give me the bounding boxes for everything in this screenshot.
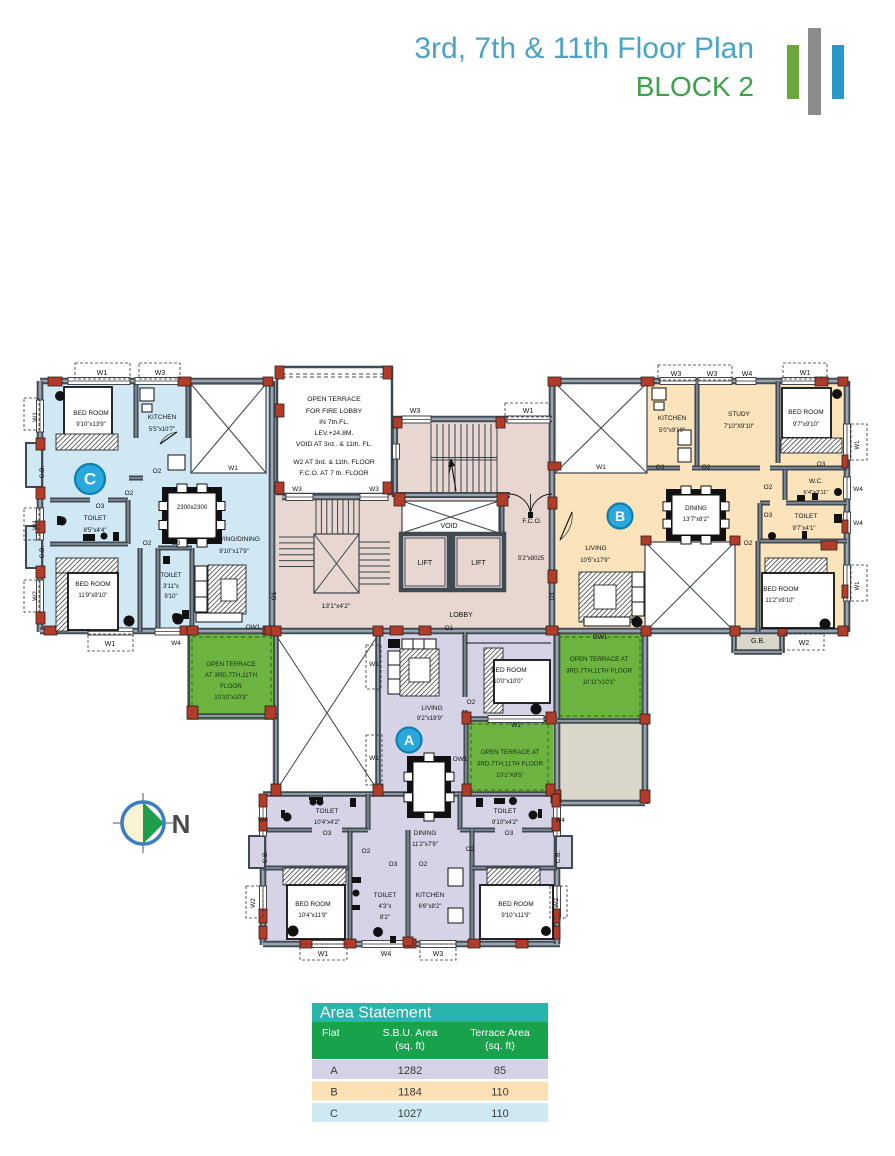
svg-text:5'5"x10'7": 5'5"x10'7": [149, 427, 175, 433]
svg-text:11'2"x7'9": 11'2"x7'9": [412, 842, 438, 848]
svg-text:W4: W4: [381, 951, 392, 958]
svg-text:W1: W1: [369, 661, 379, 668]
svg-text:W1: W1: [228, 465, 238, 472]
svg-text:W1: W1: [105, 641, 116, 648]
svg-text:11'2"x9'10": 11'2"x9'10": [765, 598, 794, 604]
svg-text:IN 7th.FL.: IN 7th.FL.: [319, 419, 349, 426]
svg-text:O2: O2: [467, 699, 476, 706]
svg-text:O2: O2: [362, 848, 371, 855]
svg-text:W1: W1: [369, 755, 379, 762]
svg-text:9'10": 9'10": [164, 594, 177, 600]
svg-text:LOBBY: LOBBY: [449, 612, 473, 619]
svg-text:O1: O1: [445, 625, 454, 632]
svg-text:10'4"x4'2": 10'4"x4'2": [314, 820, 340, 826]
svg-text:A: A: [404, 732, 414, 748]
svg-text:W3: W3: [671, 371, 682, 378]
svg-text:6'4"x3'11": 6'4"x3'11": [804, 490, 829, 496]
svg-text:9'10"x13'9": 9'10"x13'9": [76, 422, 106, 428]
svg-text:O2: O2: [125, 490, 134, 497]
svg-text:O3: O3: [96, 503, 105, 510]
svg-text:W1: W1: [97, 370, 108, 377]
svg-text:O2: O2: [764, 484, 773, 491]
svg-text:W3: W3: [369, 486, 379, 493]
svg-text:BED ROOM: BED ROOM: [491, 667, 526, 674]
svg-text:OPEN TERRACE AT: OPEN TERRACE AT: [570, 656, 629, 663]
svg-text:LIVING/DINING: LIVING/DINING: [214, 536, 260, 543]
svg-text:10'5"x17'9": 10'5"x17'9": [580, 558, 610, 564]
svg-text:5'2"x8025: 5'2"x8025: [518, 556, 545, 562]
svg-text:10'0"x10'0": 10'0"x10'0": [493, 679, 523, 685]
svg-text:W1: W1: [596, 464, 606, 471]
svg-text:C.B.: C.B.: [39, 465, 46, 478]
svg-text:3RD,7TH,11TH FLOOR: 3RD,7TH,11TH FLOOR: [566, 668, 633, 675]
svg-text:W1: W1: [855, 581, 861, 591]
svg-text:4'3"x: 4'3"x: [379, 904, 392, 910]
svg-text:FLOOR: FLOOR: [220, 683, 242, 690]
svg-text:W.C.: W.C.: [809, 478, 823, 485]
svg-text:BED ROOM: BED ROOM: [763, 586, 798, 593]
svg-text:O3: O3: [817, 461, 826, 468]
svg-text:10'10"x10'3": 10'10"x10'3": [214, 694, 247, 701]
svg-text:85: 85: [494, 1065, 506, 1077]
svg-text:W3: W3: [707, 371, 718, 378]
svg-text:1184: 1184: [398, 1087, 422, 1099]
svg-text:O2: O2: [702, 464, 711, 471]
svg-text:W1: W1: [318, 951, 329, 958]
svg-text:N: N: [172, 809, 191, 839]
svg-text:BED ROOM: BED ROOM: [498, 901, 533, 908]
svg-text:9'7"x4'1": 9'7"x4'1": [793, 526, 816, 532]
svg-text:O3: O3: [764, 512, 773, 519]
svg-text:O2: O2: [153, 468, 162, 475]
svg-text:BED ROOM: BED ROOM: [75, 581, 110, 588]
svg-text:(sq. ft): (sq. ft): [485, 1040, 515, 1052]
svg-text:W1: W1: [855, 440, 861, 450]
svg-text:TOILET: TOILET: [316, 808, 339, 815]
svg-text:TOILET: TOILET: [84, 515, 107, 522]
svg-text:BED ROOM: BED ROOM: [788, 409, 823, 416]
svg-text:O3: O3: [172, 540, 181, 547]
svg-text:OW1: OW1: [246, 624, 261, 631]
svg-text:OPEN TERRACE: OPEN TERRACE: [307, 396, 361, 403]
svg-text:VOID AT 3rd.. & 11th. FL.: VOID AT 3rd.. & 11th. FL.: [296, 441, 372, 448]
svg-text:W4: W4: [32, 520, 39, 530]
svg-text:W4: W4: [742, 371, 753, 378]
svg-text:TOILET: TOILET: [161, 573, 182, 579]
svg-text:AT 3RD,7TH,11TH: AT 3RD,7TH,11TH: [205, 672, 258, 679]
svg-text:6'6"x8'2": 6'6"x8'2": [419, 904, 442, 910]
svg-text:10'11"x10'1": 10'11"x10'1": [583, 679, 616, 686]
svg-text:B: B: [615, 508, 625, 524]
svg-text:O3: O3: [656, 464, 665, 471]
svg-text:W2: W2: [799, 640, 810, 647]
svg-text:Flat: Flat: [322, 1027, 340, 1039]
svg-text:O2: O2: [419, 861, 428, 868]
svg-text:13'1"x4'2": 13'1"x4'2": [322, 603, 351, 610]
svg-text:BED ROOM: BED ROOM: [295, 901, 330, 908]
svg-text:KITCHEN: KITCHEN: [658, 415, 687, 422]
svg-text:C: C: [84, 470, 96, 489]
svg-text:OPEN TERRACE: OPEN TERRACE: [206, 661, 256, 668]
svg-text:LIVING: LIVING: [585, 545, 606, 552]
svg-text:F.C.O. AT 7 th. FLOOR: F.C.O. AT 7 th. FLOOR: [299, 470, 368, 477]
svg-text:W2: W2: [250, 898, 257, 908]
svg-text:LIFT: LIFT: [471, 560, 486, 567]
svg-text:O1: O1: [549, 591, 556, 600]
svg-text:O2: O2: [143, 540, 152, 547]
svg-text:11'9"x9'10": 11'9"x9'10": [78, 593, 107, 599]
svg-text:9'10"x11'9": 9'10"x11'9": [501, 913, 530, 919]
svg-text:W2: W2: [32, 591, 39, 601]
svg-text:C.B.: C.B.: [39, 545, 46, 558]
svg-text:FOR FIRE LOBBY: FOR FIRE LOBBY: [306, 408, 363, 415]
svg-text:3RD,7TH,11TH FLOOR: 3RD,7TH,11TH FLOOR: [477, 761, 544, 768]
svg-text:W4: W4: [171, 640, 181, 647]
svg-text:VOID: VOID: [440, 523, 457, 530]
svg-text:C.B.: C.B.: [262, 850, 269, 863]
svg-text:10'4"x11'9": 10'4"x11'9": [298, 913, 327, 919]
svg-text:W1: W1: [32, 412, 39, 422]
svg-text:5'0"x9'10": 5'0"x9'10": [659, 428, 685, 434]
svg-text:OPEN TERRACE AT: OPEN TERRACE AT: [481, 749, 540, 756]
svg-text:OW1: OW1: [453, 756, 468, 763]
svg-text:LIFT: LIFT: [418, 560, 433, 567]
svg-text:O3: O3: [323, 830, 332, 837]
svg-text:9'10"x17'9": 9'10"x17'9": [219, 549, 249, 555]
svg-text:7'10"X9'10": 7'10"X9'10": [724, 424, 755, 430]
svg-text:W1: W1: [800, 370, 811, 377]
svg-text:1027: 1027: [398, 1108, 422, 1120]
svg-text:13'7"x8'2": 13'7"x8'2": [683, 517, 709, 523]
svg-text:S.B.U. Area: S.B.U. Area: [383, 1027, 438, 1039]
svg-text:TOILET: TOILET: [795, 513, 818, 520]
svg-text:W1: W1: [523, 408, 534, 415]
svg-text:1282: 1282: [398, 1065, 422, 1077]
svg-text:O2: O2: [744, 540, 753, 547]
svg-text:9'7"x9'10": 9'7"x9'10": [793, 422, 819, 428]
svg-text:OW1: OW1: [593, 634, 608, 641]
svg-text:W4: W4: [258, 817, 268, 824]
svg-text:9'10"x4'2": 9'10"x4'2": [492, 820, 518, 826]
svg-text:LEV.+24.8M.: LEV.+24.8M.: [315, 430, 354, 437]
svg-text:B: B: [330, 1087, 337, 1099]
svg-text:W3: W3: [433, 951, 444, 958]
svg-text:BED ROOM: BED ROOM: [73, 410, 108, 417]
svg-text:8'5"x4'4": 8'5"x4'4": [84, 528, 107, 534]
svg-text:110: 110: [491, 1108, 509, 1120]
svg-text:W1: W1: [511, 722, 521, 729]
svg-text:W2 AT 3rd. & 11th. FLOOR: W2 AT 3rd. & 11th. FLOOR: [293, 459, 375, 466]
svg-text:(sq. ft): (sq. ft): [395, 1040, 425, 1052]
svg-text:DINING: DINING: [414, 830, 437, 837]
svg-text:F.C.O.: F.C.O.: [522, 518, 541, 525]
svg-text:O3: O3: [505, 830, 514, 837]
svg-text:W3: W3: [410, 408, 421, 415]
svg-text:3'11"x: 3'11"x: [163, 584, 179, 590]
svg-text:O1: O1: [271, 591, 278, 600]
svg-text:3rd, 7th & 11th Floor Plan: 3rd, 7th & 11th Floor Plan: [414, 32, 754, 65]
svg-text:DINING: DINING: [685, 505, 707, 512]
svg-text:STUDY: STUDY: [728, 411, 751, 418]
svg-text:A: A: [330, 1065, 338, 1077]
svg-text:W3: W3: [292, 486, 302, 493]
svg-text:110: 110: [491, 1087, 509, 1099]
svg-text:C.B.: C.B.: [555, 850, 562, 863]
svg-text:KITCHEN: KITCHEN: [416, 892, 445, 899]
svg-text:W2: W2: [553, 898, 560, 908]
svg-text:KITCHEN: KITCHEN: [148, 414, 177, 421]
svg-text:2300x2300: 2300x2300: [177, 504, 208, 511]
svg-text:BLOCK 2: BLOCK 2: [636, 71, 754, 102]
svg-text:C: C: [330, 1108, 338, 1120]
svg-text:Area Statement: Area Statement: [320, 1005, 432, 1022]
svg-text:9'2"x19'9": 9'2"x19'9": [417, 716, 443, 722]
svg-text:W4: W4: [853, 486, 863, 493]
svg-text:TOILET: TOILET: [374, 892, 397, 899]
svg-text:W4: W4: [555, 817, 565, 824]
svg-text:W4: W4: [853, 520, 863, 527]
svg-text:8'2": 8'2": [380, 915, 390, 921]
svg-text:Terrace Area: Terrace Area: [470, 1027, 530, 1039]
svg-text:O2: O2: [466, 846, 475, 853]
svg-text:10'1"X8'5": 10'1"X8'5": [496, 772, 524, 779]
svg-text:G.B.: G.B.: [751, 638, 765, 645]
svg-text:O3: O3: [389, 861, 398, 868]
svg-text:TOILET: TOILET: [494, 808, 517, 815]
svg-text:W3: W3: [155, 370, 166, 377]
svg-text:LIVING: LIVING: [421, 705, 442, 712]
